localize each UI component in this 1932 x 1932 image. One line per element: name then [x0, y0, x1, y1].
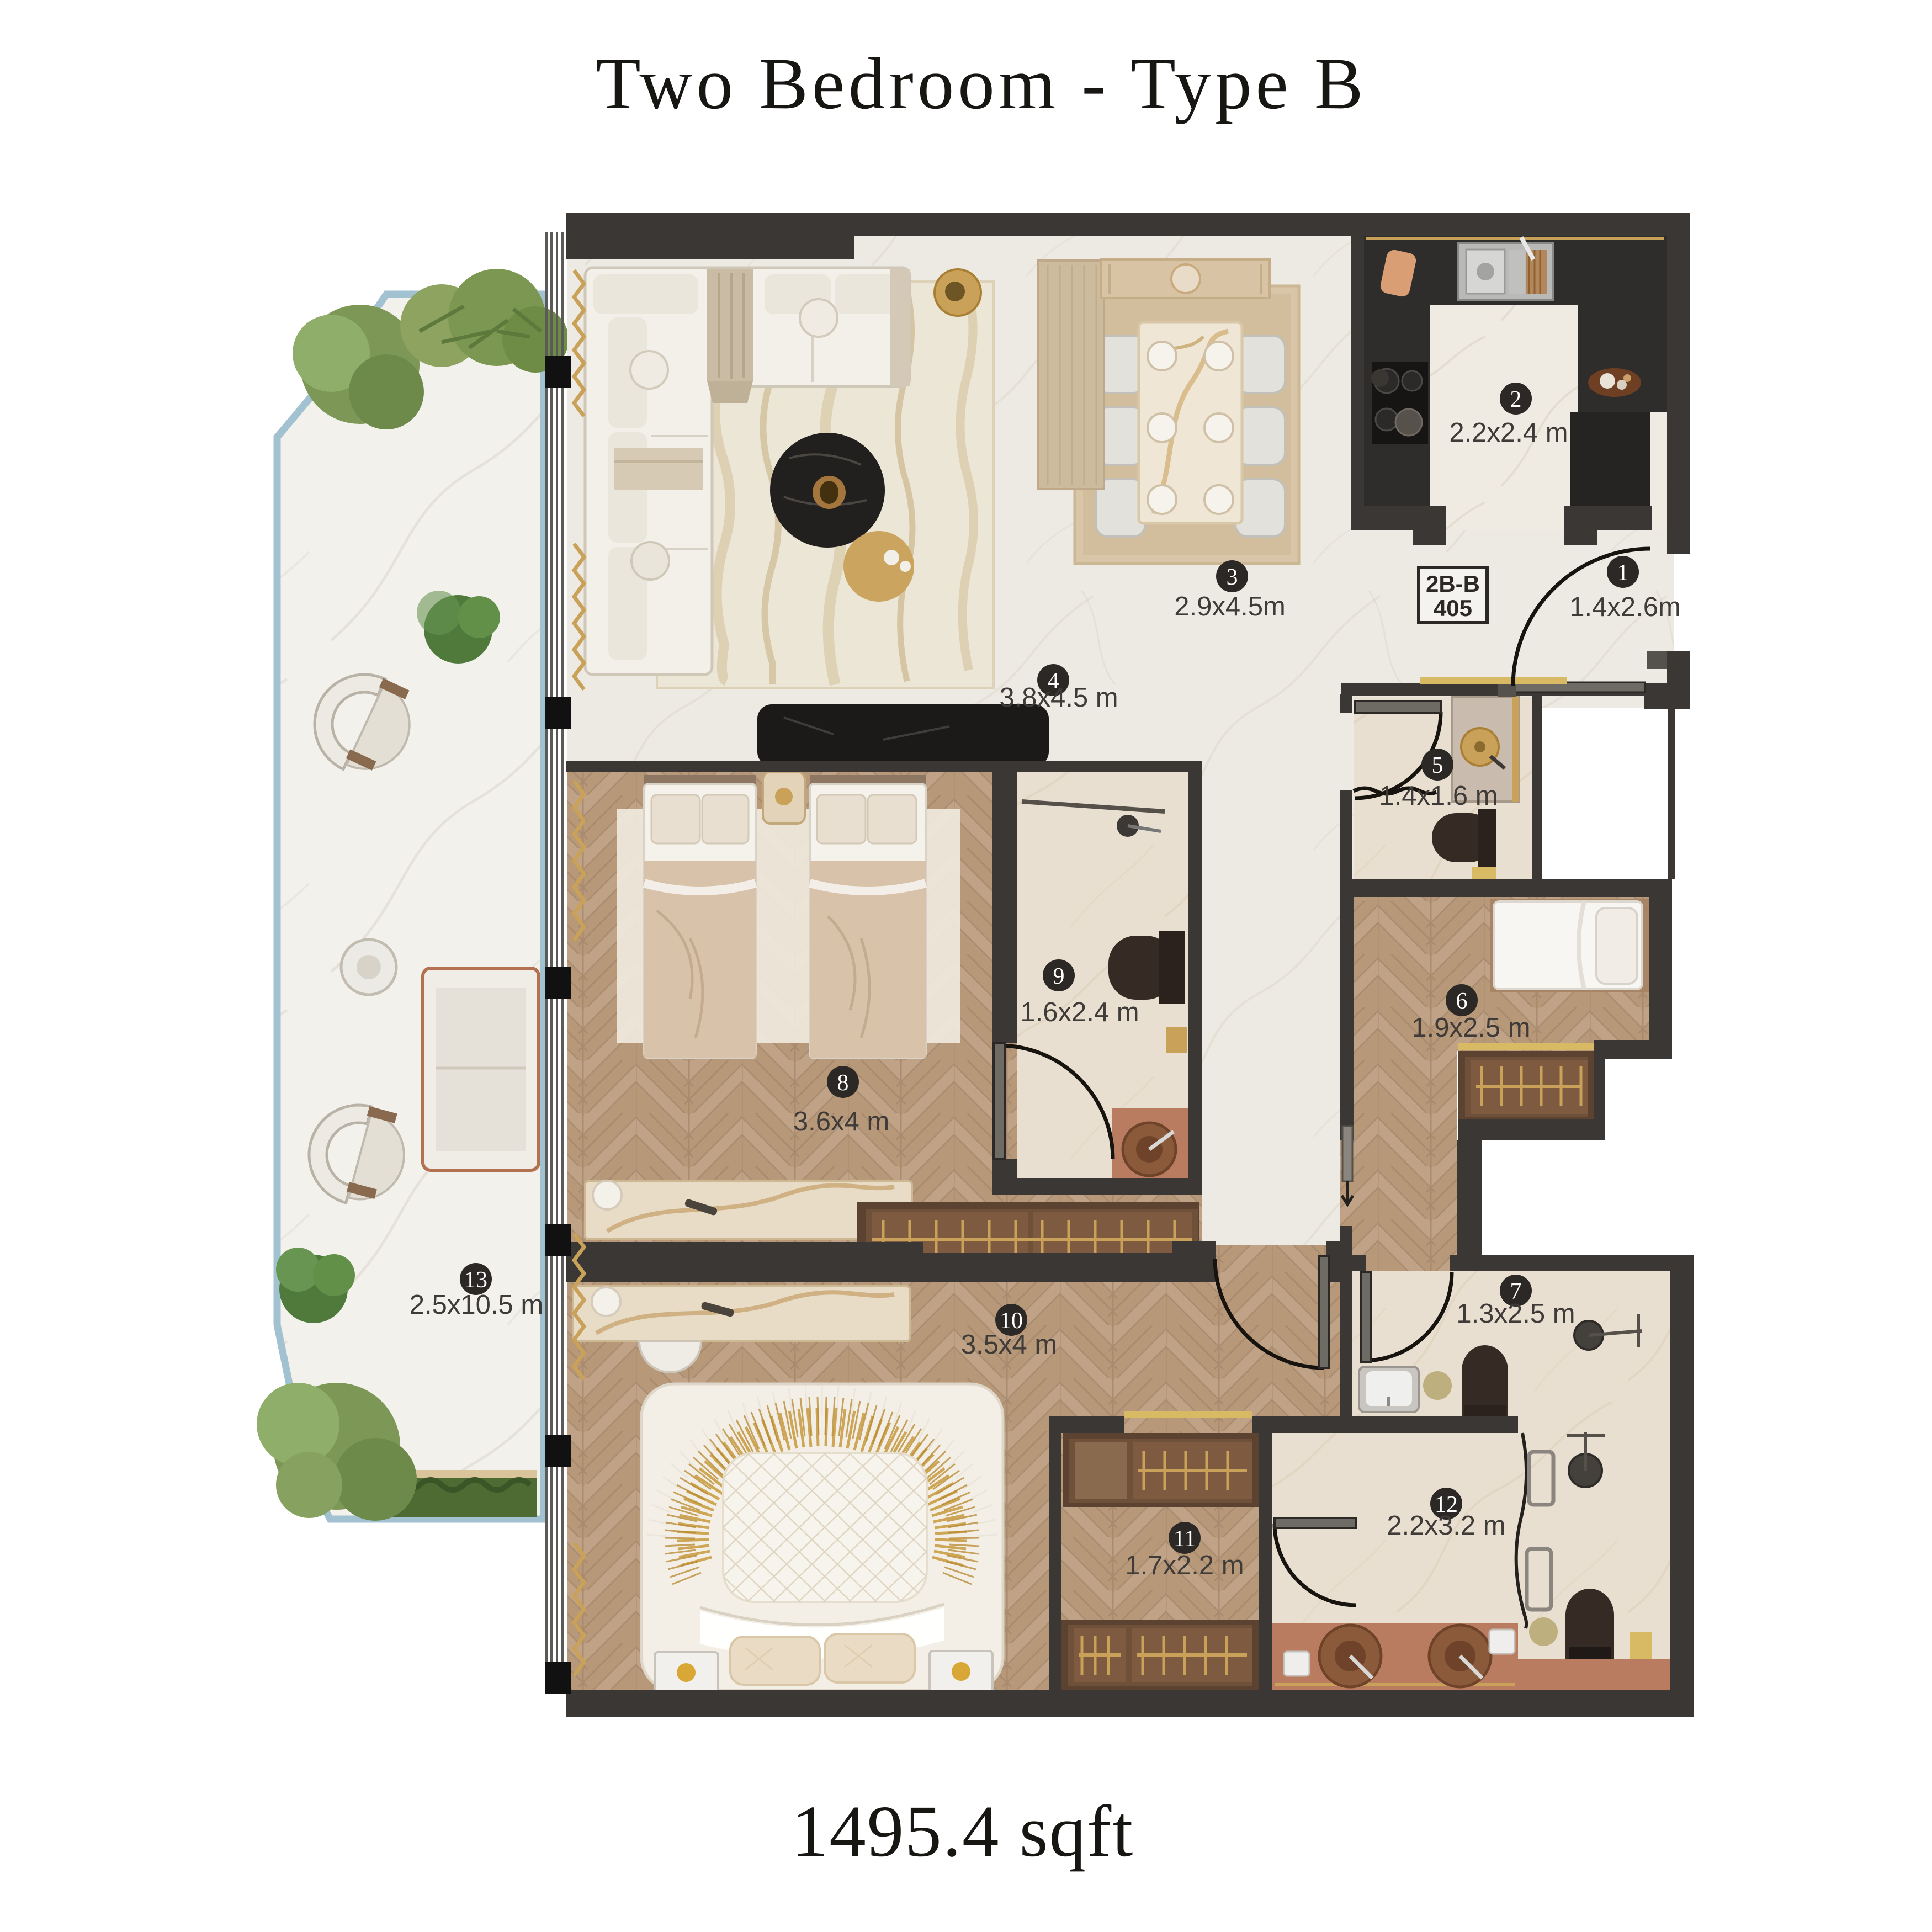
svg-text:2.2x2.4 m: 2.2x2.4 m — [1449, 418, 1568, 448]
svg-text:3.5x4 m: 3.5x4 m — [961, 1330, 1057, 1360]
svg-text:6: 6 — [1456, 989, 1468, 1014]
svg-text:1.3x2.5 m: 1.3x2.5 m — [1456, 1299, 1575, 1329]
svg-text:2: 2 — [1510, 387, 1522, 412]
svg-text:9: 9 — [1053, 964, 1065, 989]
svg-text:11: 11 — [1174, 1526, 1196, 1552]
svg-text:2.2x3.2 m: 2.2x3.2 m — [1387, 1511, 1505, 1541]
svg-text:3: 3 — [1227, 565, 1238, 590]
svg-text:1.7x2.2 m: 1.7x2.2 m — [1125, 1551, 1244, 1580]
svg-text:2.5x10.5 m: 2.5x10.5 m — [410, 1290, 543, 1320]
svg-text:2.9x4.5m: 2.9x4.5m — [1174, 592, 1286, 622]
svg-text:1.9x2.5 m: 1.9x2.5 m — [1411, 1013, 1530, 1043]
svg-text:3.6x4 m: 3.6x4 m — [793, 1107, 889, 1137]
svg-text:1495.4 sqft: 1495.4 sqft — [792, 1790, 1134, 1872]
svg-text:1: 1 — [1617, 560, 1629, 586]
svg-text:5: 5 — [1432, 753, 1443, 778]
svg-text:1.6x2.4 m: 1.6x2.4 m — [1020, 997, 1139, 1027]
svg-text:3.8x4.5 m: 3.8x4.5 m — [999, 683, 1118, 713]
svg-text:1.4x1.6 m: 1.4x1.6 m — [1379, 781, 1498, 811]
svg-text:Two Bedroom - Type B: Two Bedroom - Type B — [596, 43, 1367, 124]
svg-text:8: 8 — [837, 1070, 849, 1096]
svg-text:405: 405 — [1434, 595, 1472, 621]
svg-text:13: 13 — [464, 1267, 487, 1293]
svg-text:1.4x2.6m: 1.4x2.6m — [1569, 592, 1681, 622]
svg-text:2B-B: 2B-B — [1426, 571, 1480, 597]
